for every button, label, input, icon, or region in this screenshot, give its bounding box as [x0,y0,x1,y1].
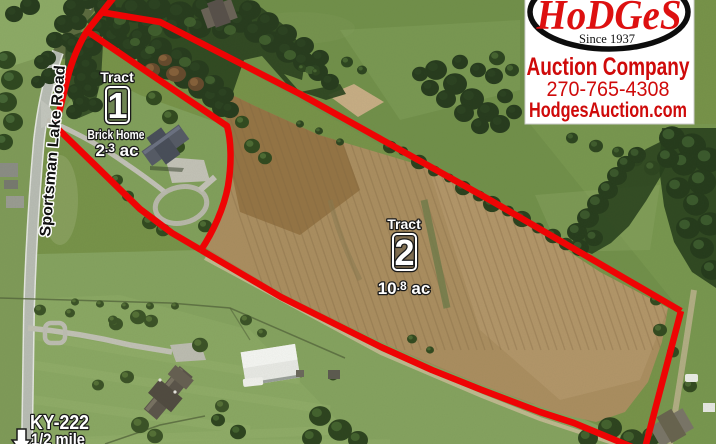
svg-text:HodgesAuction.com: HodgesAuction.com [529,99,687,122]
svg-text:Since 1937: Since 1937 [579,32,635,46]
svg-text:Brick Home: Brick Home [88,128,145,142]
svg-text:1/2 mile: 1/2 mile [31,430,85,444]
svg-text:1: 1 [107,85,127,126]
svg-text:Auction Company: Auction Company [527,53,690,81]
svg-text:2: 2 [394,232,414,273]
svg-text:270-765-4308: 270-765-4308 [547,78,670,101]
svg-text:Tract: Tract [100,69,134,85]
svg-text:2.3 ac: 2.3 ac [95,141,138,160]
svg-text:Tract: Tract [387,216,421,232]
